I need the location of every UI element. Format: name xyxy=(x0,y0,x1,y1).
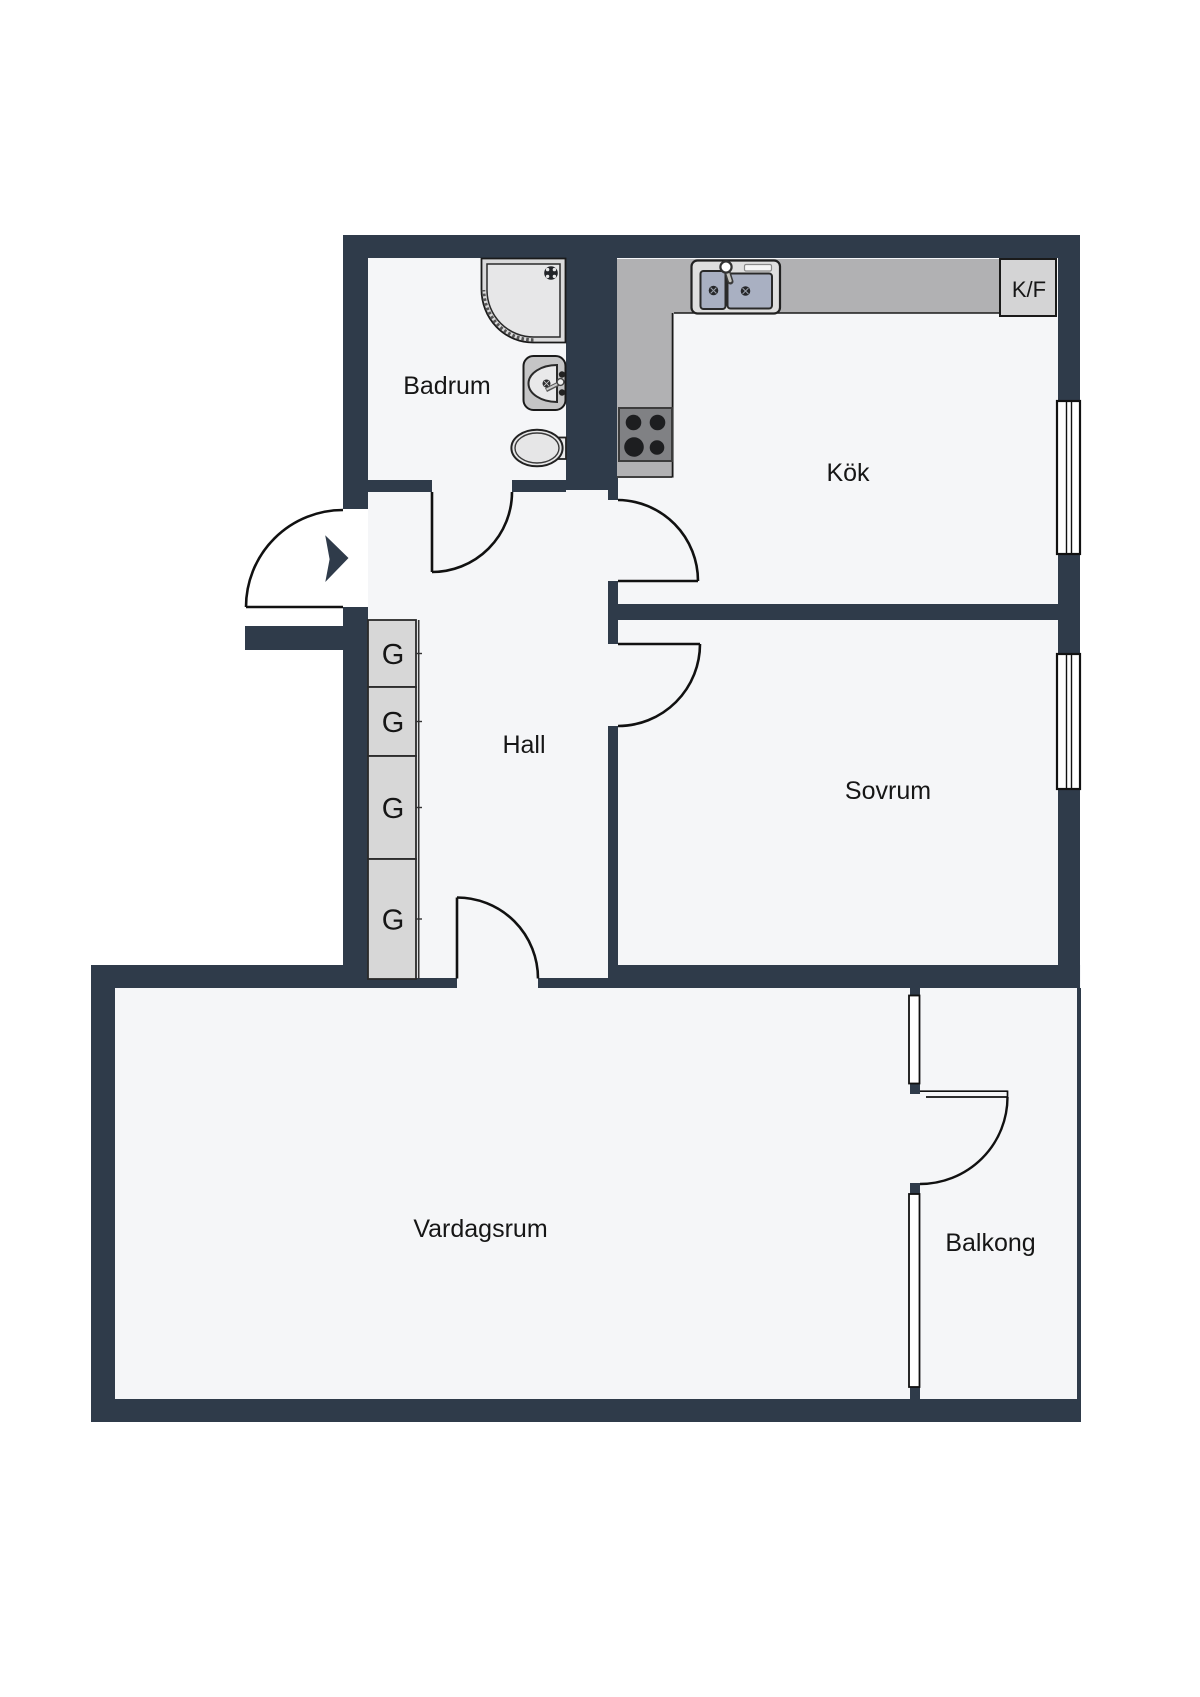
svg-text:Balkong: Balkong xyxy=(945,1229,1035,1257)
svg-text:Hall: Hall xyxy=(502,731,545,759)
svg-text:Kök: Kök xyxy=(826,459,870,487)
svg-text:Sovrum: Sovrum xyxy=(845,777,931,805)
svg-text:G: G xyxy=(382,639,405,671)
svg-text:Vardagsrum: Vardagsrum xyxy=(413,1215,547,1243)
svg-text:K/F: K/F xyxy=(1012,277,1046,302)
svg-text:G: G xyxy=(382,707,405,739)
svg-text:G: G xyxy=(382,905,405,937)
svg-text:G: G xyxy=(382,793,405,825)
svg-text:Badrum: Badrum xyxy=(403,372,491,400)
